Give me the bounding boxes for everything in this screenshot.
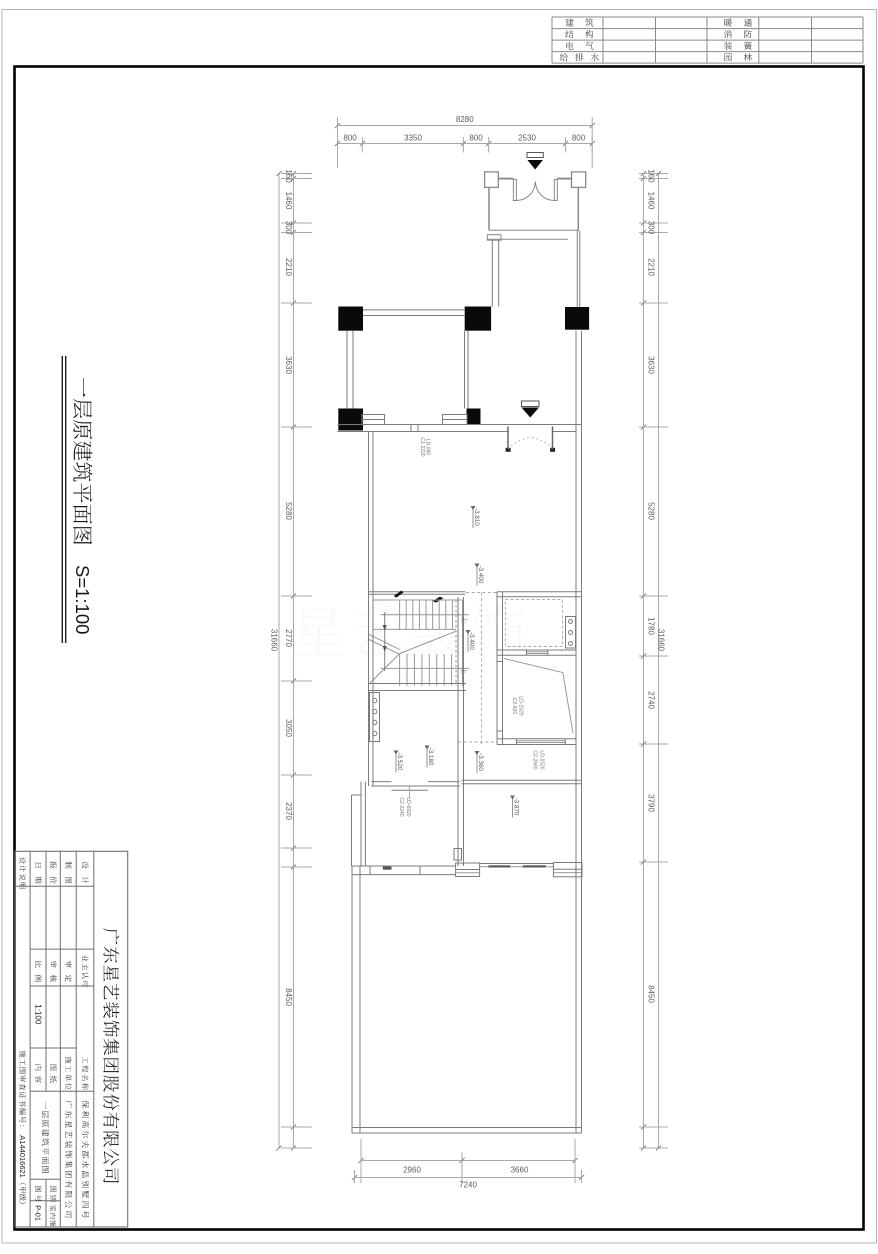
svg-text:P-01: P-01 bbox=[33, 1205, 42, 1221]
svg-text:3630: 3630 bbox=[284, 356, 293, 374]
svg-text:1780: 1780 bbox=[647, 617, 656, 635]
svg-text:800: 800 bbox=[343, 134, 357, 143]
svg-text:8280: 8280 bbox=[456, 115, 474, 124]
svg-text:-3.400: -3.400 bbox=[468, 632, 475, 650]
svg-text:C1-2220: C1-2220 bbox=[419, 437, 425, 456]
svg-text:7240: 7240 bbox=[459, 1181, 477, 1190]
svg-text:-3.180: -3.180 bbox=[427, 748, 434, 766]
svg-text:8450: 8450 bbox=[284, 988, 293, 1006]
svg-text:C2-2240: C2-2240 bbox=[398, 797, 404, 816]
svg-text:31660: 31660 bbox=[657, 629, 666, 652]
svg-text:160: 160 bbox=[647, 169, 656, 183]
svg-text:3790: 3790 bbox=[647, 794, 656, 812]
svg-text:2210: 2210 bbox=[647, 258, 656, 276]
svg-text:-3.520: -3.520 bbox=[396, 753, 403, 771]
svg-text:5280: 5280 bbox=[647, 502, 656, 520]
svg-text:LD-1520: LD-1520 bbox=[539, 750, 545, 769]
svg-text:300: 300 bbox=[284, 221, 293, 235]
svg-text:1:100: 1:100 bbox=[33, 1004, 42, 1025]
svg-text:C2-2940: C2-2940 bbox=[532, 750, 538, 769]
svg-text:-3.360: -3.360 bbox=[477, 753, 484, 771]
svg-text:300: 300 bbox=[647, 221, 656, 235]
svg-text:3350: 3350 bbox=[404, 134, 422, 143]
svg-text:8450: 8450 bbox=[647, 985, 656, 1003]
svg-text:2370: 2370 bbox=[284, 802, 293, 820]
svg-text:5280: 5280 bbox=[284, 502, 293, 520]
svg-text:1460: 1460 bbox=[647, 192, 656, 210]
svg-text:1460: 1460 bbox=[284, 192, 293, 210]
svg-text:2770: 2770 bbox=[284, 629, 293, 647]
svg-text:2210: 2210 bbox=[284, 258, 293, 276]
svg-text:2960: 2960 bbox=[403, 1166, 421, 1175]
svg-text:3630: 3630 bbox=[647, 356, 656, 374]
svg-text:31660: 31660 bbox=[270, 629, 279, 652]
svg-text:2740: 2740 bbox=[647, 691, 656, 709]
svg-text:-3.870: -3.870 bbox=[513, 798, 520, 816]
svg-text:2530: 2530 bbox=[518, 134, 536, 143]
svg-text:3660: 3660 bbox=[511, 1166, 529, 1175]
svg-text:S=1:100: S=1:100 bbox=[72, 565, 93, 634]
svg-text:-3.400: -3.400 bbox=[477, 566, 484, 584]
svg-text:3050: 3050 bbox=[284, 719, 293, 737]
svg-text:LD-990: LD-990 bbox=[425, 439, 431, 456]
svg-text:-3.810: -3.810 bbox=[473, 508, 480, 526]
svg-text:LD-6920: LD-6920 bbox=[405, 797, 411, 816]
svg-text:800: 800 bbox=[469, 134, 483, 143]
svg-text:800: 800 bbox=[572, 134, 586, 143]
svg-text:C2-820: C2-820 bbox=[511, 698, 517, 715]
svg-text:160: 160 bbox=[284, 169, 293, 183]
svg-text:LD-1520: LD-1520 bbox=[518, 696, 524, 715]
svg-text:A144016621: A144016621 bbox=[18, 1135, 27, 1178]
